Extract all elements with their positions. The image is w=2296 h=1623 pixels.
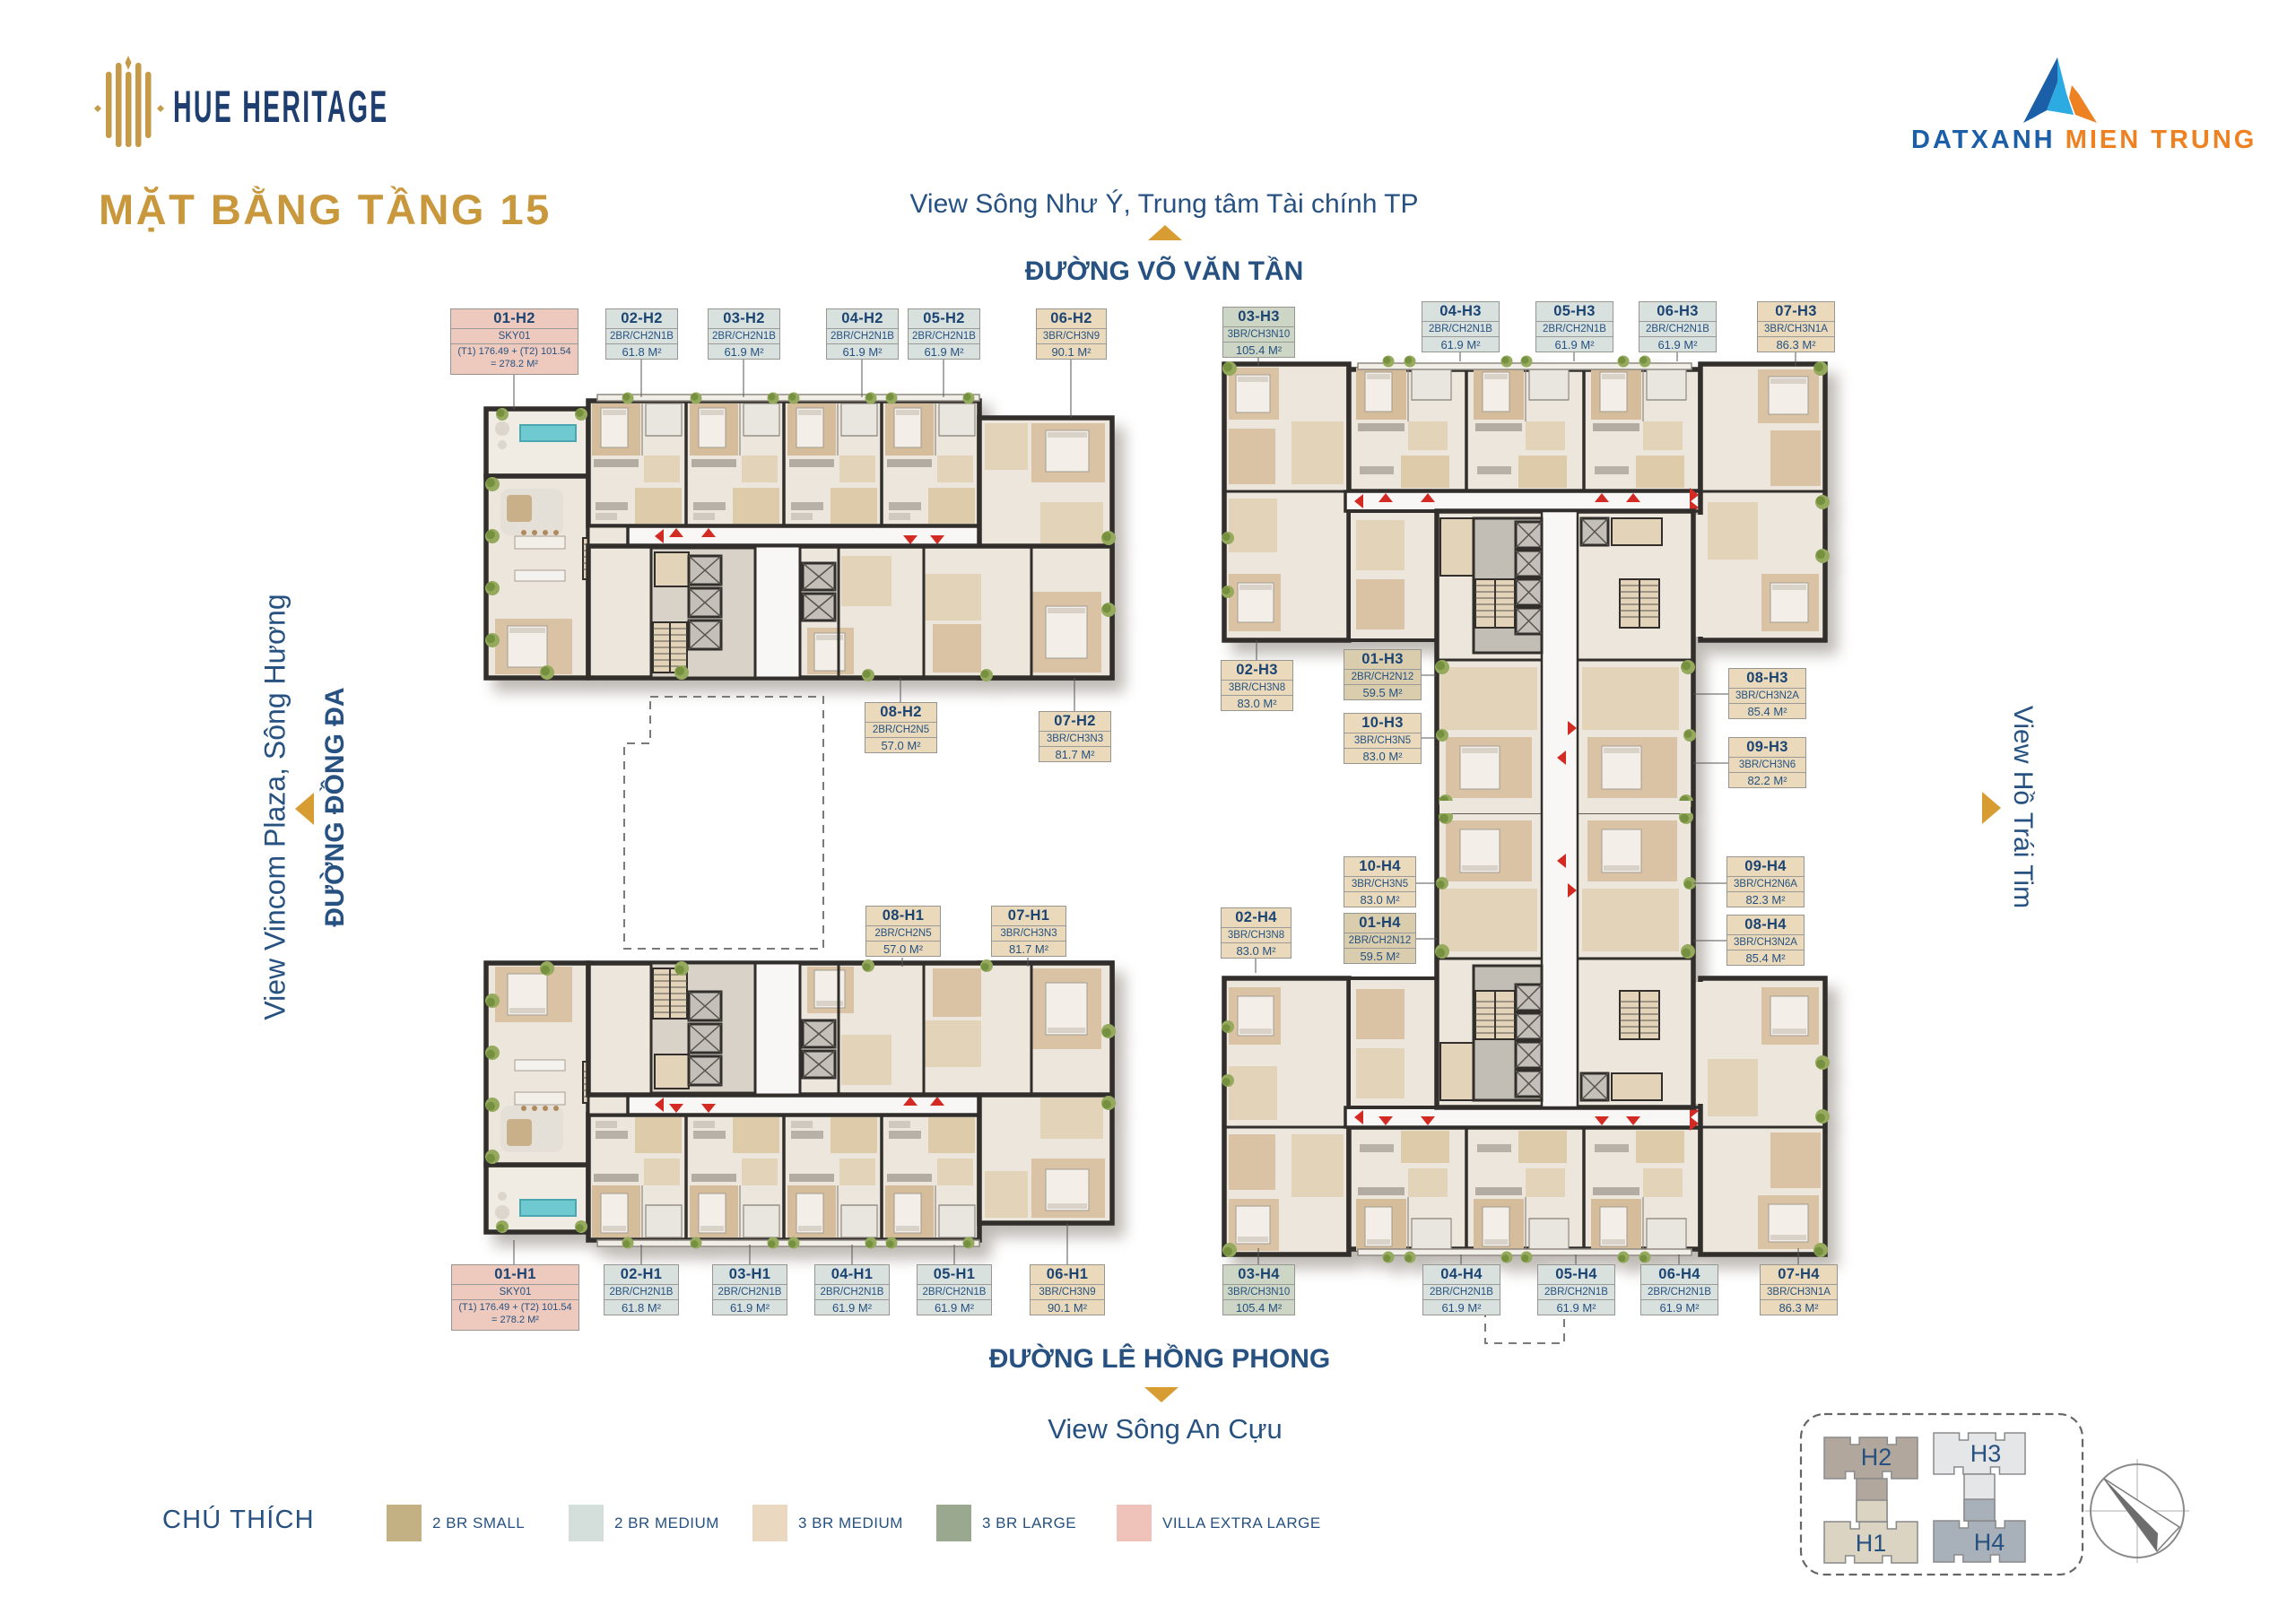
svg-text:H3: H3 — [1970, 1440, 2002, 1467]
svg-text:H2: H2 — [1861, 1444, 1892, 1471]
svg-text:H1: H1 — [1856, 1530, 1887, 1557]
svg-text:H4: H4 — [1974, 1529, 2005, 1556]
